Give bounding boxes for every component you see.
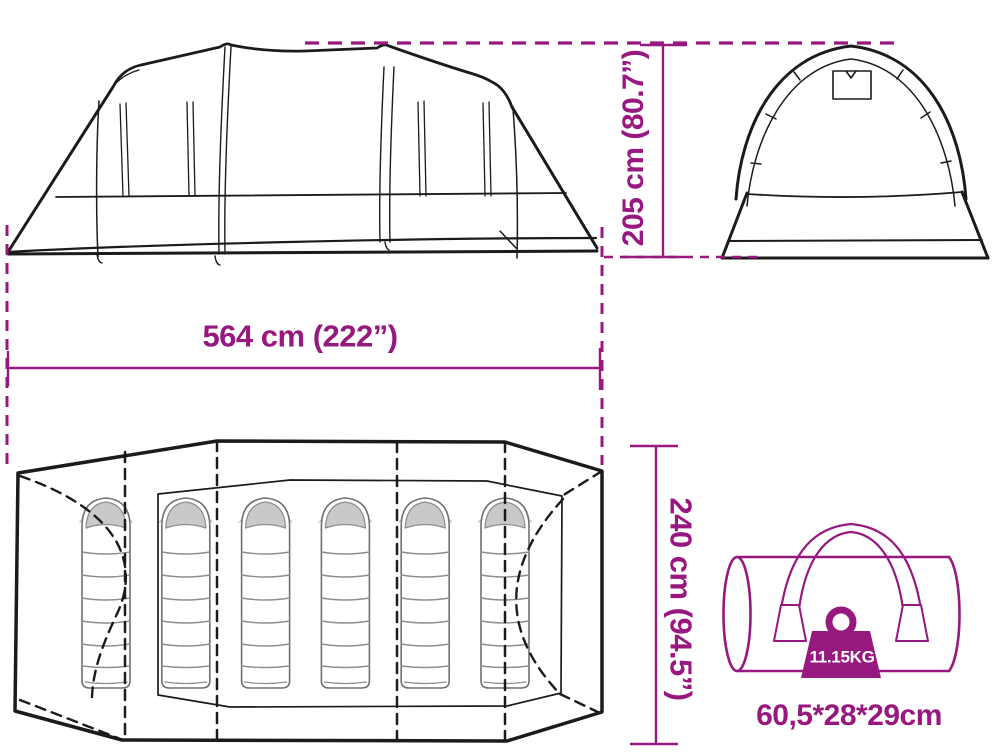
weight-icon xyxy=(801,610,881,678)
sleeping-bag xyxy=(240,498,292,688)
length-dimension xyxy=(8,348,600,390)
diagram-line-art xyxy=(0,0,999,752)
tent-floor-plan xyxy=(15,441,602,741)
tent-vent-window xyxy=(833,71,871,99)
tent-dimension-diagram: 564 cm (222”) 205 cm (80.7”) 240 cm (94.… xyxy=(0,0,999,752)
height-dimension-label: 205 cm (80.7”) xyxy=(619,50,649,246)
tent-front-view xyxy=(722,46,988,258)
depth-dimension-label: 240 cm (94.5”) xyxy=(666,497,697,700)
sleeping-bag xyxy=(399,498,451,688)
length-dimension-label: 564 cm (222”) xyxy=(202,321,397,352)
bag-weight-label: 11.15KG xyxy=(809,649,874,666)
bag-size-label: 60,5*28*29cm xyxy=(756,701,942,731)
sleeping-bag xyxy=(319,498,371,688)
sleeping-bag xyxy=(160,498,212,688)
tent-side-view xyxy=(8,44,597,265)
